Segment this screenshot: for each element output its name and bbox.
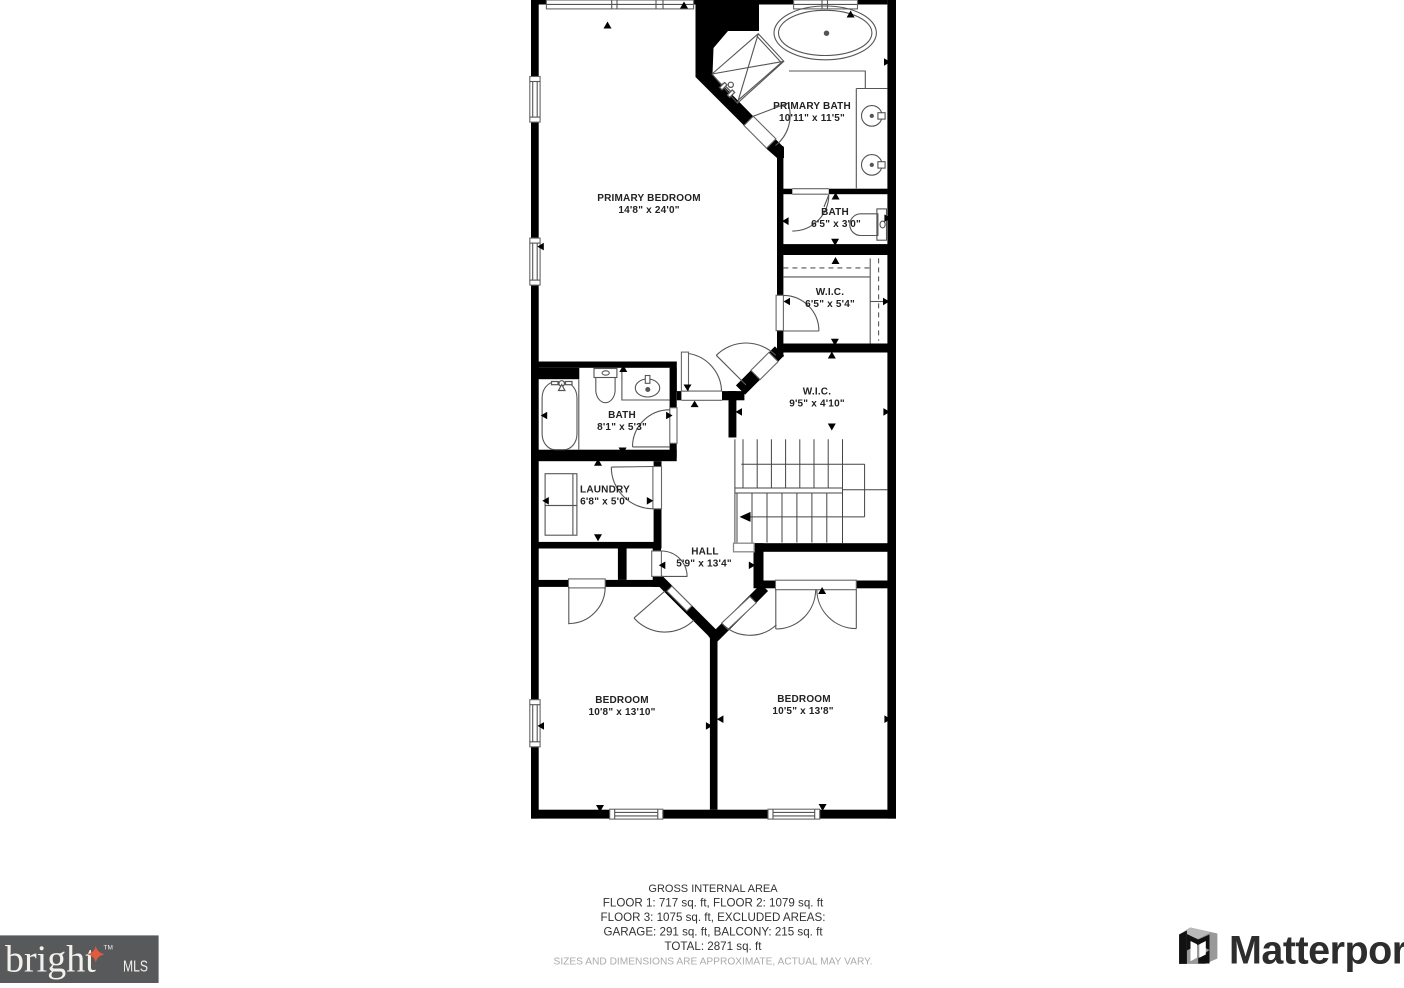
svg-text:MLS: MLS: [123, 959, 148, 976]
svg-text:W.I.C.: W.I.C.: [803, 387, 831, 398]
svg-text:GARAGE: 291 sq. ft, BALCONY: 2: GARAGE: 291 sq. ft, BALCONY: 215 sq. ft: [603, 926, 823, 939]
svg-text:Matterport: Matterport: [1229, 929, 1404, 973]
svg-text:GROSS INTERNAL AREA: GROSS INTERNAL AREA: [648, 883, 778, 895]
svg-text:5'9" x 13'4": 5'9" x 13'4": [676, 559, 732, 570]
svg-text:bright: bright: [5, 939, 96, 981]
svg-text:FLOOR 3: 1075 sq. ft, EXCLUDED: FLOOR 3: 1075 sq. ft, EXCLUDED AREAS:: [601, 911, 826, 924]
svg-text:PRIMARY BEDROOM: PRIMARY BEDROOM: [597, 193, 701, 204]
svg-text:8'1" x 5'3": 8'1" x 5'3": [597, 422, 647, 433]
svg-text:10'11" x 11'5": 10'11" x 11'5": [779, 113, 845, 124]
svg-text:TM: TM: [104, 945, 113, 952]
svg-text:PRIMARY BATH: PRIMARY BATH: [773, 101, 851, 112]
svg-text:FLOOR 1: 717 sq. ft, FLOOR 2:: FLOOR 1: 717 sq. ft, FLOOR 2: 1079 sq. f…: [603, 897, 824, 910]
svg-text:TOTAL: 2871 sq. ft: TOTAL: 2871 sq. ft: [665, 940, 763, 953]
svg-text:W.I.C.: W.I.C.: [816, 287, 844, 298]
svg-text:BATH: BATH: [608, 410, 636, 421]
svg-text:SIZES AND DIMENSIONS ARE APPRO: SIZES AND DIMENSIONS ARE APPROXIMATE, AC…: [554, 957, 873, 968]
svg-text:6'5" x 5'4": 6'5" x 5'4": [805, 299, 855, 310]
svg-text:LAUNDRY: LAUNDRY: [580, 485, 630, 496]
svg-text:BEDROOM: BEDROOM: [777, 694, 831, 705]
svg-text:9'5" x 4'10": 9'5" x 4'10": [789, 399, 845, 410]
svg-text:BATH: BATH: [821, 207, 849, 218]
svg-text:HALL: HALL: [691, 547, 718, 558]
svg-text:6'8" x 5'0": 6'8" x 5'0": [580, 497, 630, 508]
svg-text:10'8" x 13'10": 10'8" x 13'10": [588, 707, 655, 718]
svg-text:14'8" x 24'0": 14'8" x 24'0": [618, 205, 679, 216]
svg-text:6'5" x 3'0": 6'5" x 3'0": [811, 219, 861, 230]
svg-text:10'5" x 13'8": 10'5" x 13'8": [772, 706, 833, 717]
svg-text:BEDROOM: BEDROOM: [595, 695, 649, 706]
